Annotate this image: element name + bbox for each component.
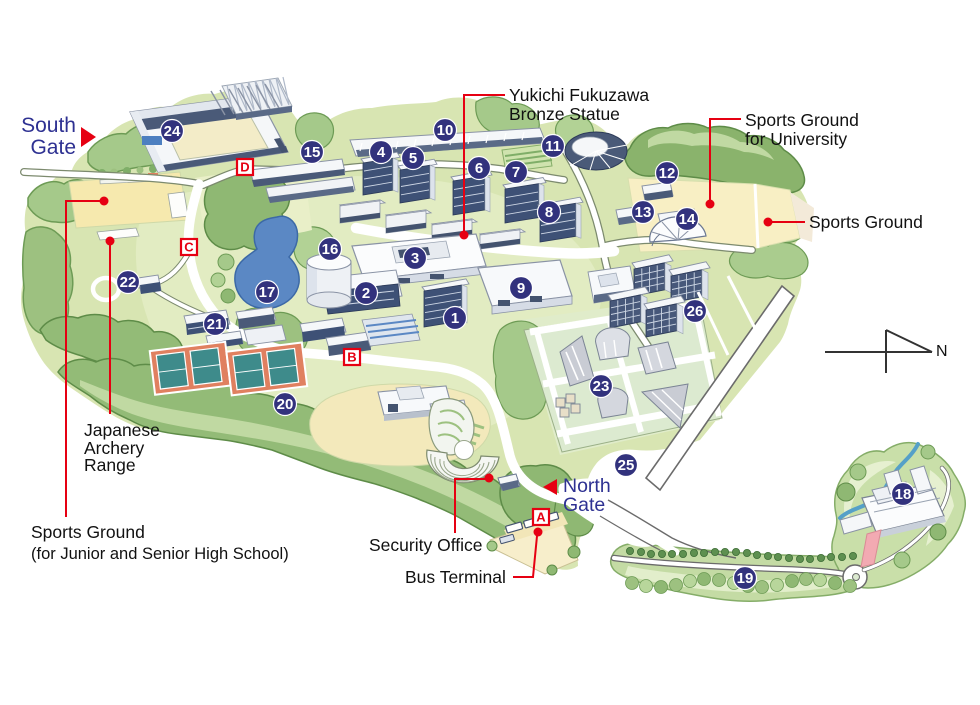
- svg-text:9: 9: [517, 280, 525, 297]
- svg-text:20: 20: [277, 396, 294, 413]
- svg-text:Bus Terminal: Bus Terminal: [405, 567, 506, 587]
- svg-text:4: 4: [377, 144, 386, 161]
- svg-text:Japanese: Japanese: [84, 420, 160, 440]
- svg-text:South: South: [21, 114, 76, 137]
- svg-text:Gate: Gate: [563, 494, 605, 516]
- svg-text:7: 7: [512, 164, 520, 181]
- svg-text:Bronze Statue: Bronze Statue: [509, 104, 620, 124]
- svg-text:1: 1: [451, 310, 459, 327]
- svg-text:13: 13: [635, 204, 652, 221]
- svg-text:26: 26: [687, 303, 704, 320]
- svg-text:11: 11: [545, 138, 561, 155]
- svg-text:19: 19: [737, 570, 754, 587]
- svg-text:6: 6: [475, 160, 483, 177]
- svg-text:2: 2: [362, 285, 370, 302]
- svg-text:23: 23: [593, 378, 610, 395]
- svg-text:15: 15: [304, 144, 321, 161]
- svg-text:Sports Ground: Sports Ground: [745, 110, 859, 130]
- svg-text:B: B: [347, 350, 356, 365]
- svg-text:16: 16: [322, 241, 339, 258]
- svg-text:17: 17: [259, 284, 276, 301]
- svg-text:C: C: [184, 240, 194, 255]
- svg-text:12: 12: [659, 165, 676, 182]
- svg-text:3: 3: [411, 250, 419, 267]
- svg-text:5: 5: [409, 150, 417, 167]
- svg-text:D: D: [240, 160, 249, 175]
- svg-text:21: 21: [207, 316, 224, 333]
- svg-text:N: N: [936, 343, 948, 360]
- svg-text:18: 18: [895, 486, 912, 503]
- svg-text:14: 14: [679, 211, 696, 228]
- svg-text:25: 25: [618, 457, 635, 474]
- svg-text:(for Junior and Senior High Sc: (for Junior and Senior High School): [31, 545, 289, 563]
- svg-text:10: 10: [437, 122, 454, 139]
- svg-text:Sports Ground: Sports Ground: [809, 212, 923, 232]
- svg-text:for University: for University: [745, 129, 847, 149]
- svg-text:Yukichi Fukuzawa: Yukichi Fukuzawa: [509, 85, 649, 105]
- svg-text:24: 24: [164, 123, 181, 140]
- svg-text:A: A: [536, 510, 546, 525]
- svg-text:Sports Ground: Sports Ground: [31, 522, 145, 542]
- svg-text:Security Office: Security Office: [369, 535, 482, 555]
- svg-text:8: 8: [545, 204, 553, 221]
- svg-text:22: 22: [120, 274, 137, 291]
- svg-text:Gate: Gate: [30, 136, 76, 159]
- svg-text:Range: Range: [84, 455, 136, 475]
